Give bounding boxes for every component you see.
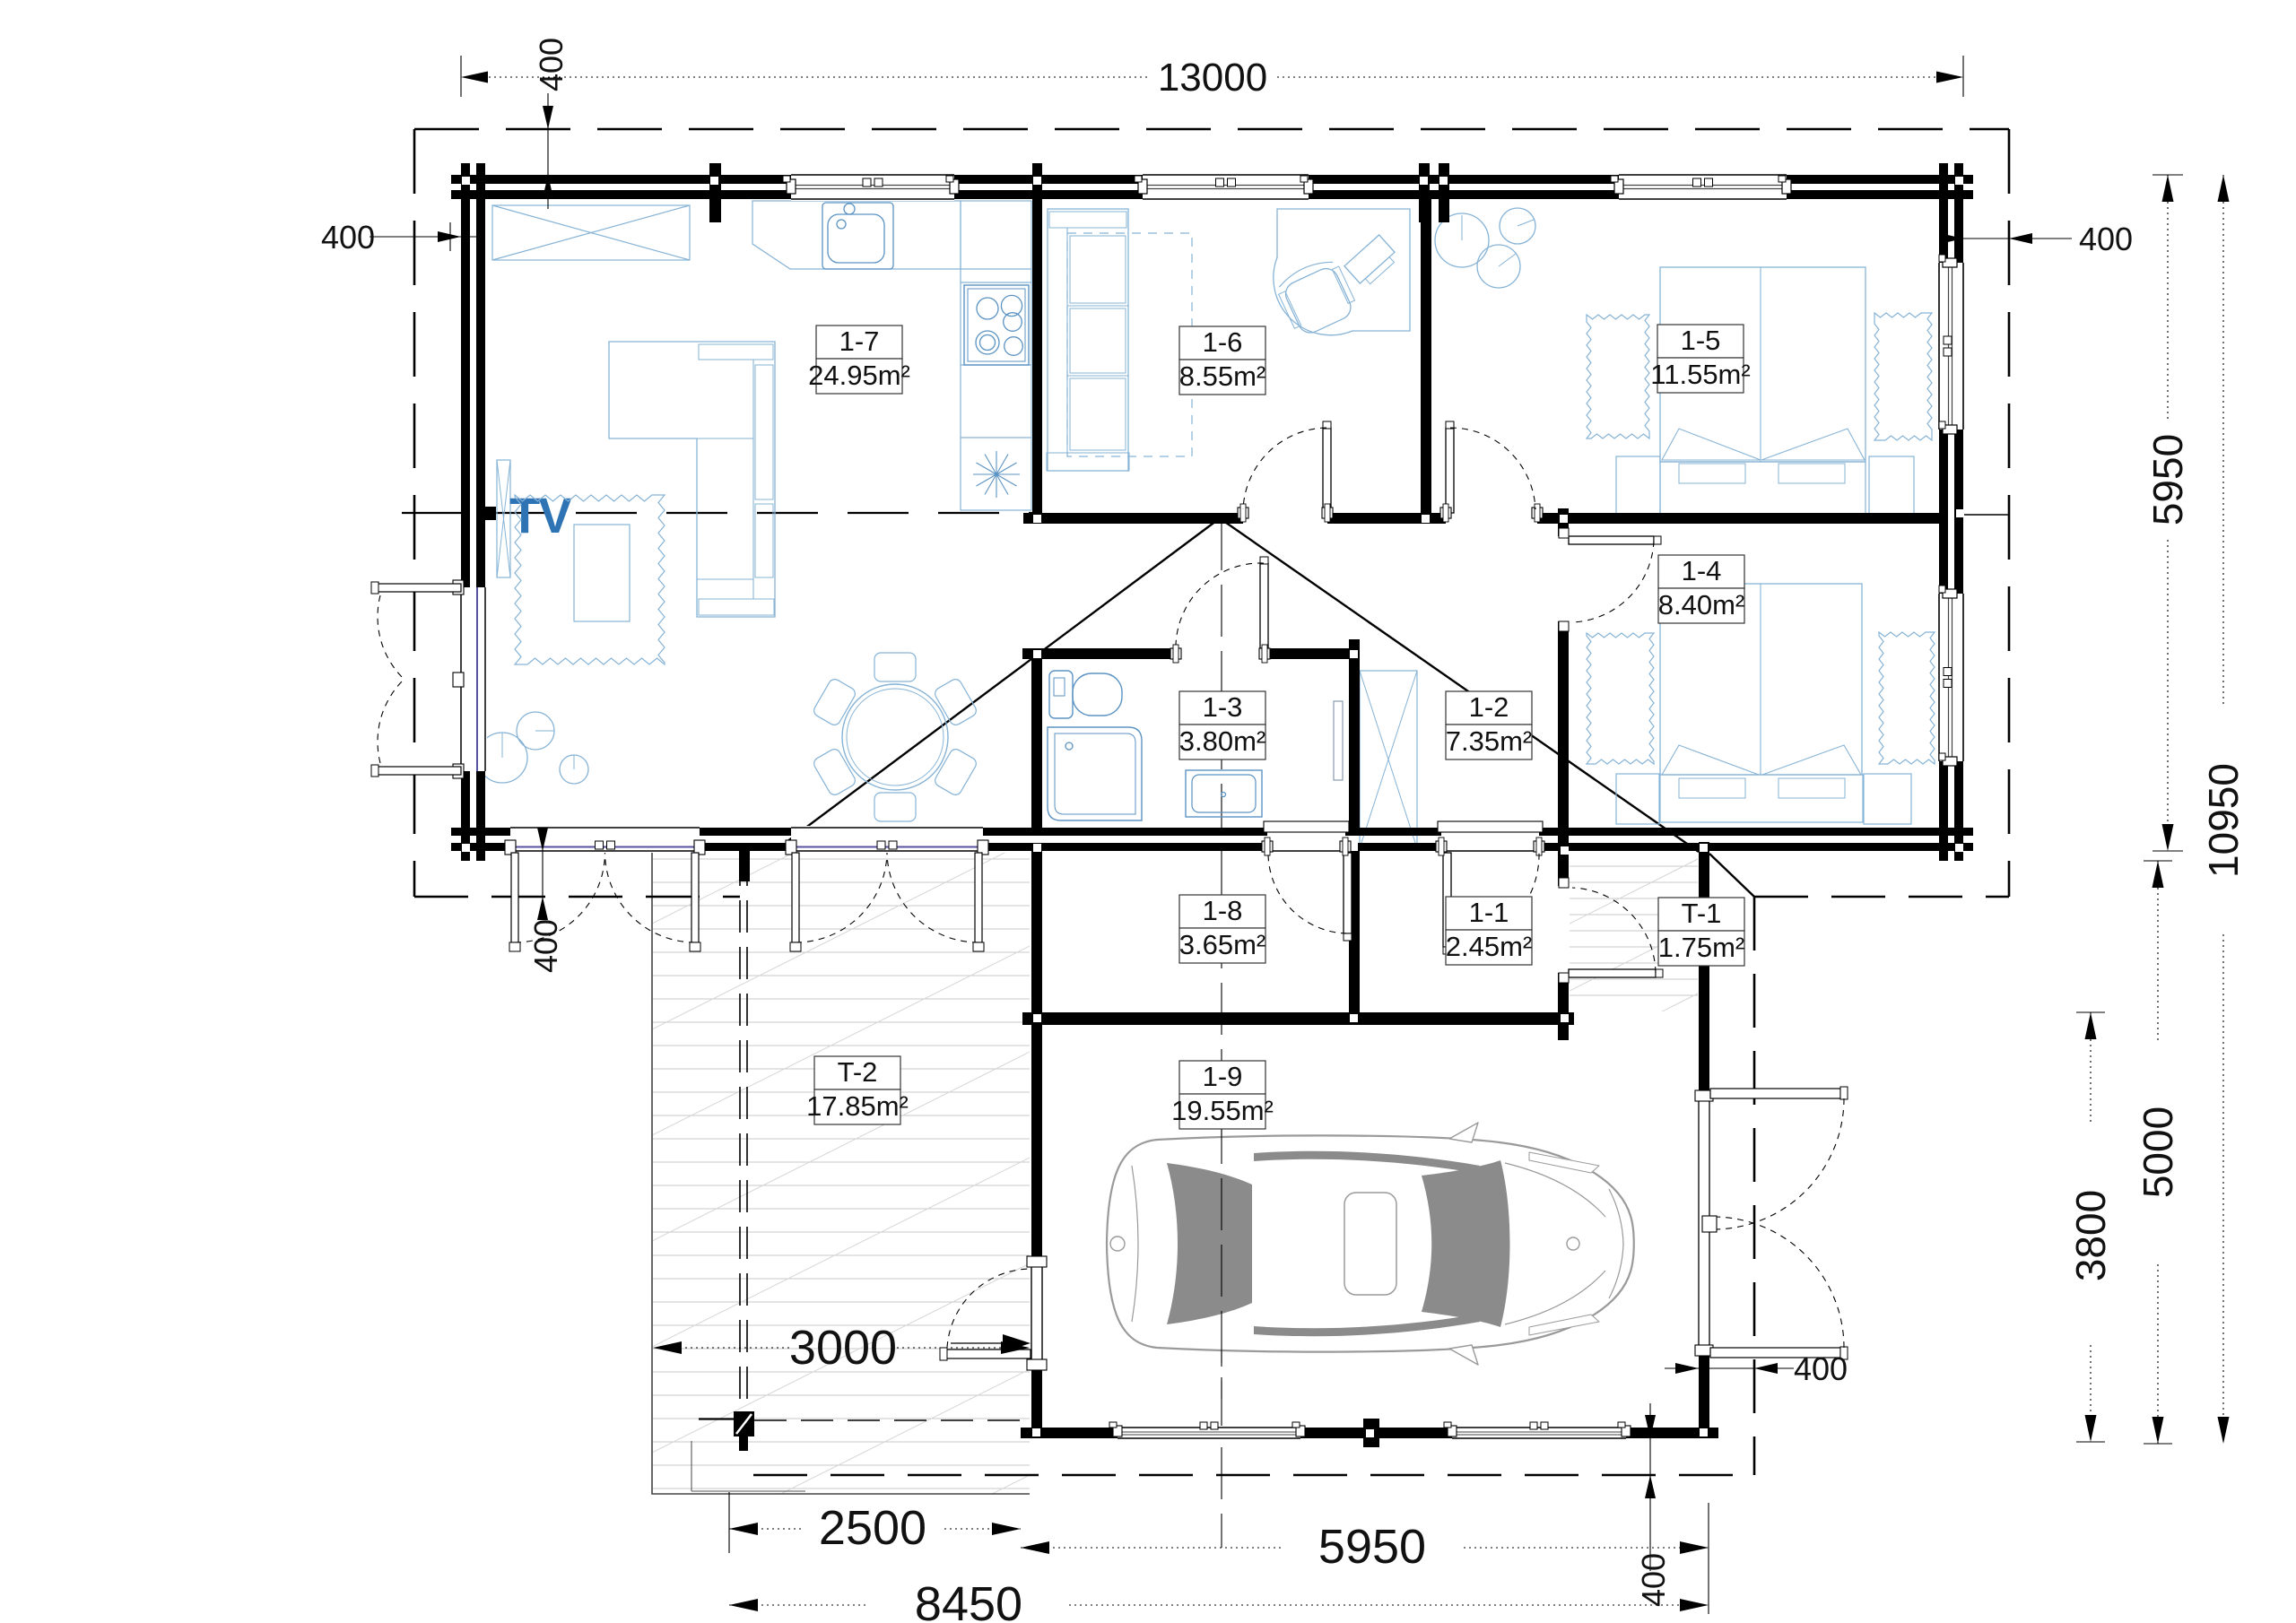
svg-text:5000: 5000: [2135, 1107, 2181, 1198]
svg-text:1-4: 1-4: [1682, 555, 1722, 586]
svg-text:1-1: 1-1: [1469, 897, 1509, 928]
svg-text:2.45m²: 2.45m²: [1446, 931, 1532, 962]
svg-text:17.85m²: 17.85m²: [806, 1090, 909, 1122]
svg-text:400: 400: [1794, 1350, 1848, 1387]
svg-text:3.80m²: 3.80m²: [1179, 725, 1265, 757]
svg-text:1.75m²: 1.75m²: [1658, 932, 1744, 963]
svg-text:8450: 8450: [915, 1577, 1022, 1623]
svg-text:TV: TV: [509, 487, 571, 543]
svg-text:5950: 5950: [1318, 1520, 1426, 1574]
svg-text:13000: 13000: [1158, 56, 1267, 100]
svg-text:1-8: 1-8: [1203, 895, 1243, 926]
svg-text:400: 400: [527, 919, 564, 973]
svg-text:1-3: 1-3: [1203, 691, 1243, 723]
svg-text:1-6: 1-6: [1203, 326, 1243, 358]
svg-text:11.55m²: 11.55m²: [1650, 359, 1750, 390]
svg-text:24.95m²: 24.95m²: [808, 360, 910, 391]
svg-text:2500: 2500: [819, 1501, 926, 1555]
svg-text:400: 400: [1635, 1553, 1672, 1607]
svg-text:8.40m²: 8.40m²: [1658, 589, 1744, 621]
svg-text:7.35m²: 7.35m²: [1446, 725, 1532, 757]
svg-text:T-2: T-2: [838, 1056, 878, 1088]
svg-text:T-1: T-1: [1682, 898, 1722, 929]
svg-text:5950: 5950: [2144, 434, 2191, 525]
svg-text:8.55m²: 8.55m²: [1179, 360, 1265, 392]
svg-text:1-5: 1-5: [1681, 325, 1721, 356]
svg-text:400: 400: [2079, 221, 2133, 257]
svg-text:3000: 3000: [789, 1321, 897, 1375]
svg-text:1-9: 1-9: [1203, 1061, 1243, 1092]
svg-text:400: 400: [533, 38, 570, 91]
svg-text:3.65m²: 3.65m²: [1179, 929, 1265, 960]
svg-text:19.55m²: 19.55m²: [1171, 1095, 1274, 1126]
svg-text:10950: 10950: [2200, 763, 2247, 878]
svg-text:3800: 3800: [2067, 1190, 2114, 1281]
svg-text:1-2: 1-2: [1469, 691, 1509, 723]
svg-text:1-7: 1-7: [839, 325, 880, 357]
svg-text:400: 400: [321, 219, 375, 256]
